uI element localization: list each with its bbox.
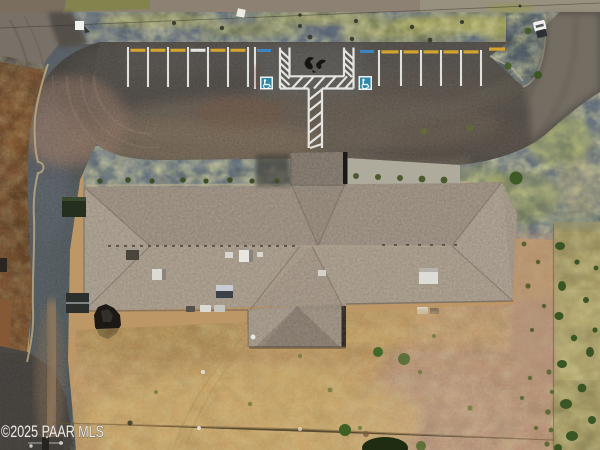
svg-text:©2025 PAAR MLS: ©2025 PAAR MLS [1,422,104,441]
